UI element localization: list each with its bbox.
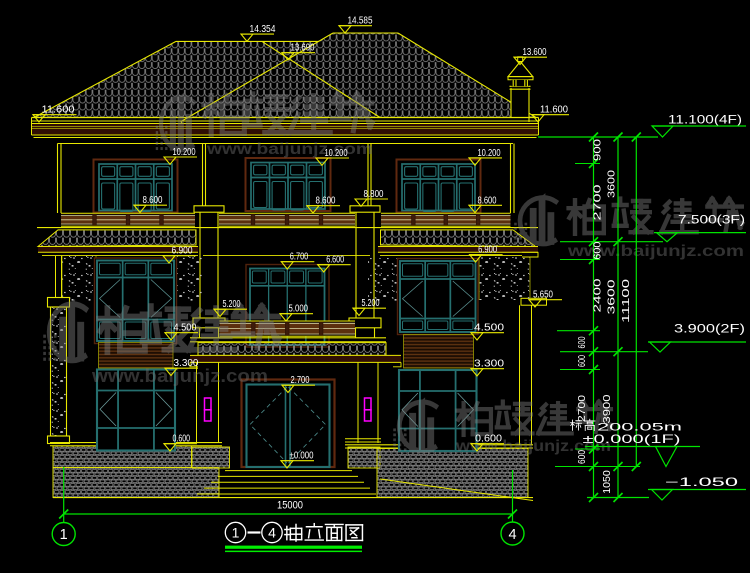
svg-text:10.200: 10.200 [478, 148, 501, 159]
svg-text:4: 4 [268, 525, 276, 541]
svg-text:11.100(4F): 11.100(4F) [668, 115, 742, 127]
svg-text:6.700: 6.700 [290, 252, 309, 263]
svg-text:7.500(3F): 7.500(3F) [678, 215, 745, 227]
svg-text:8.800: 8.800 [364, 189, 384, 200]
svg-text:600: 600 [577, 336, 588, 348]
svg-text:3.300: 3.300 [474, 359, 505, 370]
svg-text:2400: 2400 [593, 278, 604, 313]
svg-text:6.600: 6.600 [326, 255, 344, 266]
svg-text:10.200: 10.200 [325, 148, 348, 159]
svg-text:11.600: 11.600 [42, 105, 76, 116]
svg-text:4: 4 [508, 527, 516, 543]
svg-text:3900: 3900 [602, 394, 613, 424]
svg-text:6.900: 6.900 [478, 245, 497, 256]
svg-text:1: 1 [60, 527, 68, 543]
svg-text:600: 600 [577, 450, 588, 464]
svg-text:5.000: 5.000 [289, 304, 309, 315]
svg-text:8.600: 8.600 [143, 195, 163, 206]
svg-text:2.700: 2.700 [291, 375, 310, 386]
svg-text:600: 600 [577, 355, 588, 367]
svg-text:900: 900 [593, 138, 604, 161]
svg-text:1: 1 [232, 525, 240, 541]
svg-text:6.900: 6.900 [172, 246, 193, 257]
svg-text:2700: 2700 [593, 184, 604, 221]
svg-text:8.600: 8.600 [478, 195, 497, 206]
svg-text:13.690: 13.690 [291, 43, 315, 54]
svg-text:5.650: 5.650 [533, 290, 553, 301]
svg-text:5.200: 5.200 [362, 298, 380, 309]
svg-text:www.baijunjz.com: www.baijunjz.com [206, 141, 373, 158]
svg-text:4.500: 4.500 [174, 323, 198, 334]
svg-text:3.900(2F): 3.900(2F) [674, 324, 745, 336]
svg-text:3.300: 3.300 [174, 358, 200, 369]
svg-text:14.585: 14.585 [348, 16, 373, 27]
svg-text:15000: 15000 [277, 500, 303, 512]
svg-text:5.200: 5.200 [223, 299, 241, 310]
svg-text:0.600: 0.600 [475, 434, 503, 445]
svg-text:1050: 1050 [602, 470, 613, 494]
svg-text:11100: 11100 [621, 278, 632, 323]
svg-text:10.200: 10.200 [173, 147, 196, 158]
svg-text:600: 600 [593, 241, 604, 259]
svg-text:±0.000: ±0.000 [290, 451, 314, 462]
svg-text:3600: 3600 [607, 169, 618, 198]
svg-text:13.600: 13.600 [523, 47, 547, 58]
svg-text:±0.000(1F): ±0.000(1F) [583, 432, 681, 446]
svg-text:−1.050: −1.050 [665, 477, 738, 489]
svg-text:4.500: 4.500 [474, 323, 505, 334]
svg-text:11.600: 11.600 [540, 105, 569, 116]
svg-text:8.600: 8.600 [316, 196, 336, 207]
svg-text:0.600: 0.600 [173, 434, 191, 445]
svg-text:14.354: 14.354 [250, 24, 276, 35]
svg-text:3600: 3600 [607, 279, 618, 315]
svg-text:2700: 2700 [577, 394, 588, 422]
